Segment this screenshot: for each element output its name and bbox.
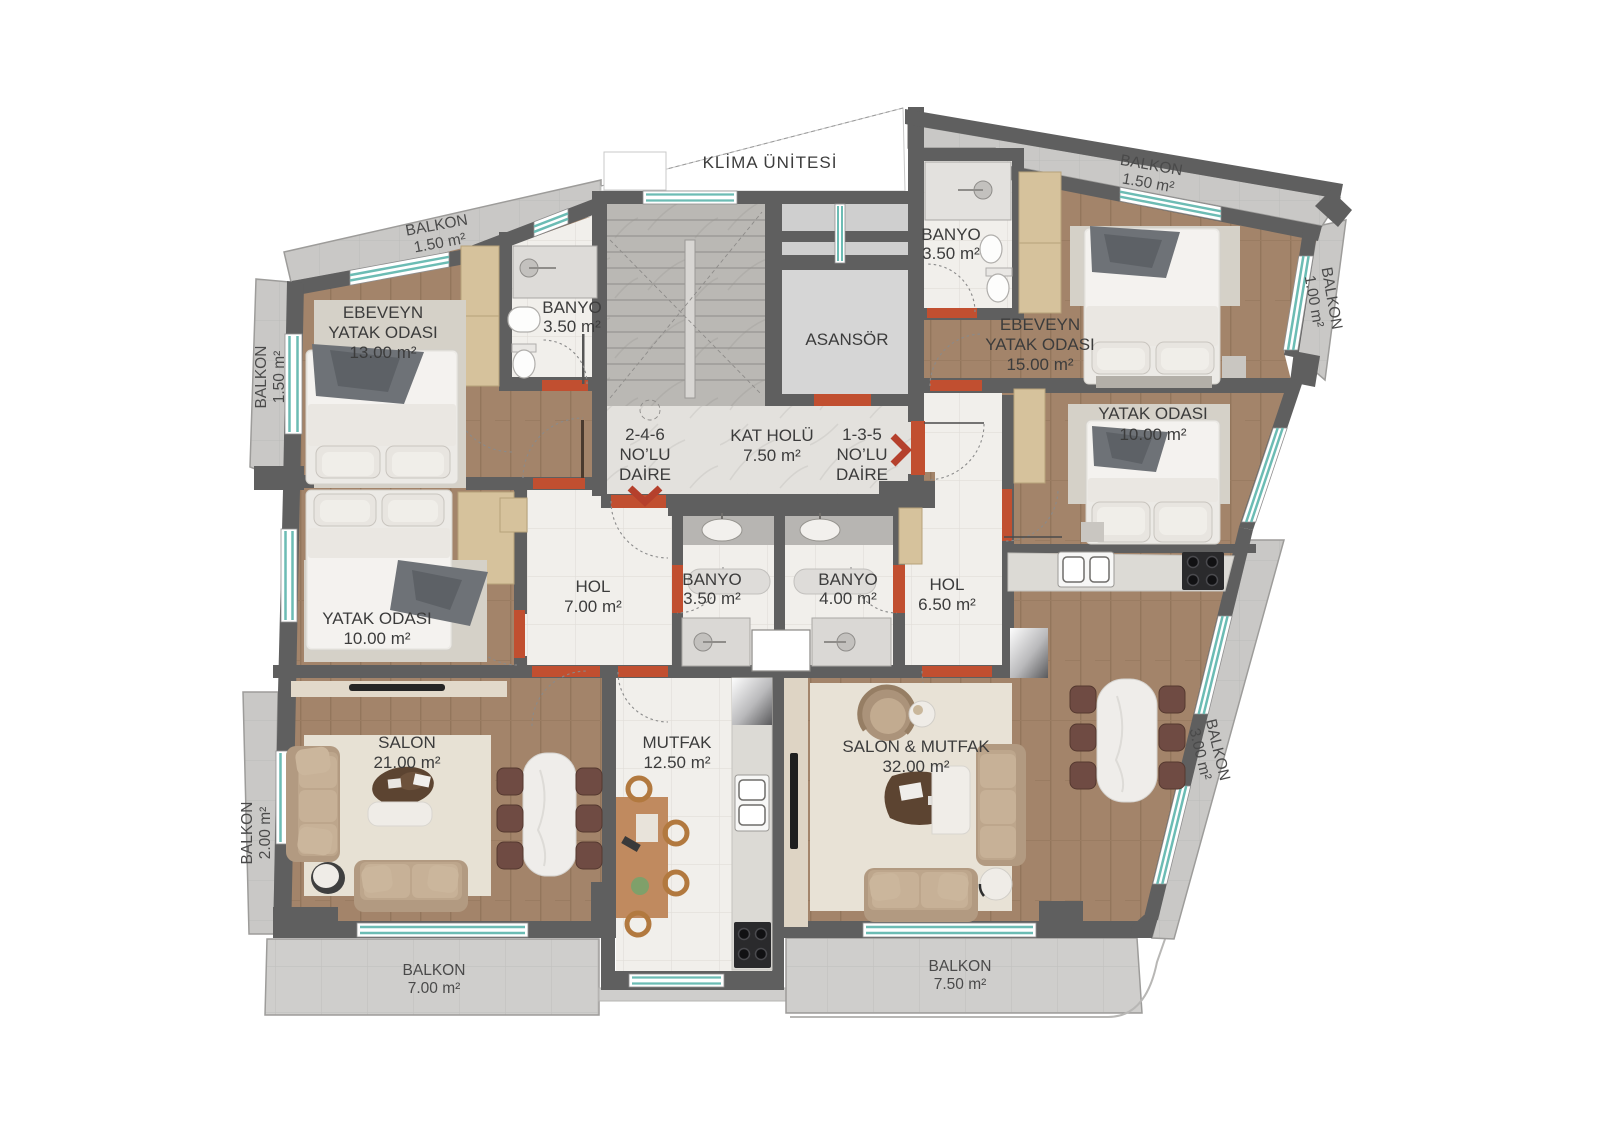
svg-text:12.50 m²: 12.50 m² bbox=[643, 753, 710, 772]
svg-text:3.50 m²: 3.50 m² bbox=[922, 244, 980, 263]
svg-text:7.50 m²: 7.50 m² bbox=[743, 446, 801, 465]
svg-text:HOL: HOL bbox=[930, 575, 965, 594]
svg-text:6.50 m²: 6.50 m² bbox=[918, 595, 976, 614]
svg-text:2.00 m²: 2.00 m² bbox=[257, 807, 274, 860]
svg-text:1.50 m²: 1.50 m² bbox=[271, 351, 288, 404]
svg-text:DAİRE: DAİRE bbox=[836, 465, 888, 484]
svg-text:NO’LU: NO’LU bbox=[836, 445, 887, 464]
svg-text:DAİRE: DAİRE bbox=[619, 465, 671, 484]
svg-text:SALON: SALON bbox=[378, 733, 436, 752]
svg-text:YATAK ODASI: YATAK ODASI bbox=[1098, 404, 1208, 423]
svg-text:2-4-6: 2-4-6 bbox=[625, 425, 665, 444]
svg-text:13.00 m²: 13.00 m² bbox=[349, 343, 416, 362]
svg-text:10.00 m²: 10.00 m² bbox=[343, 629, 410, 648]
svg-text:BALKON: BALKON bbox=[239, 802, 256, 865]
svg-text:3.50 m²: 3.50 m² bbox=[543, 317, 601, 336]
svg-text:MUTFAK: MUTFAK bbox=[643, 733, 713, 752]
svg-text:1-3-5: 1-3-5 bbox=[842, 425, 882, 444]
svg-text:7.00 m²: 7.00 m² bbox=[564, 597, 622, 616]
svg-text:3.50 m²: 3.50 m² bbox=[683, 589, 741, 608]
svg-text:ASANSÖR: ASANSÖR bbox=[805, 330, 888, 349]
svg-text:4.00 m²: 4.00 m² bbox=[819, 589, 877, 608]
svg-text:32.00 m²: 32.00 m² bbox=[882, 757, 949, 776]
svg-text:YATAK ODASI: YATAK ODASI bbox=[328, 323, 438, 342]
svg-text:10.00 m²: 10.00 m² bbox=[1119, 425, 1186, 444]
svg-text:HOL: HOL bbox=[576, 577, 611, 596]
svg-text:BANYO: BANYO bbox=[542, 298, 602, 317]
svg-text:EBEVEYN: EBEVEYN bbox=[343, 303, 423, 322]
svg-text:BANYO: BANYO bbox=[682, 570, 742, 589]
svg-text:7.00 m²: 7.00 m² bbox=[408, 980, 461, 997]
svg-text:YATAK ODASI: YATAK ODASI bbox=[322, 609, 432, 628]
svg-text:SALON & MUTFAK: SALON & MUTFAK bbox=[842, 737, 990, 756]
svg-text:KLİMA ÜNİTESİ: KLİMA ÜNİTESİ bbox=[703, 153, 838, 172]
svg-text:BALKON: BALKON bbox=[929, 958, 992, 975]
svg-text:BALKON: BALKON bbox=[403, 962, 466, 979]
svg-text:21.00 m²: 21.00 m² bbox=[373, 753, 440, 772]
svg-text:BANYO: BANYO bbox=[921, 225, 981, 244]
svg-text:NO’LU: NO’LU bbox=[619, 445, 670, 464]
svg-text:YATAK ODASI: YATAK ODASI bbox=[985, 335, 1095, 354]
svg-text:KAT HOLÜ: KAT HOLÜ bbox=[730, 426, 813, 445]
svg-text:BALKON: BALKON bbox=[253, 346, 270, 409]
svg-text:BANYO: BANYO bbox=[818, 570, 878, 589]
svg-text:EBEVEYN: EBEVEYN bbox=[1000, 315, 1080, 334]
svg-text:7.50 m²: 7.50 m² bbox=[934, 976, 987, 993]
svg-text:15.00 m²: 15.00 m² bbox=[1006, 355, 1073, 374]
